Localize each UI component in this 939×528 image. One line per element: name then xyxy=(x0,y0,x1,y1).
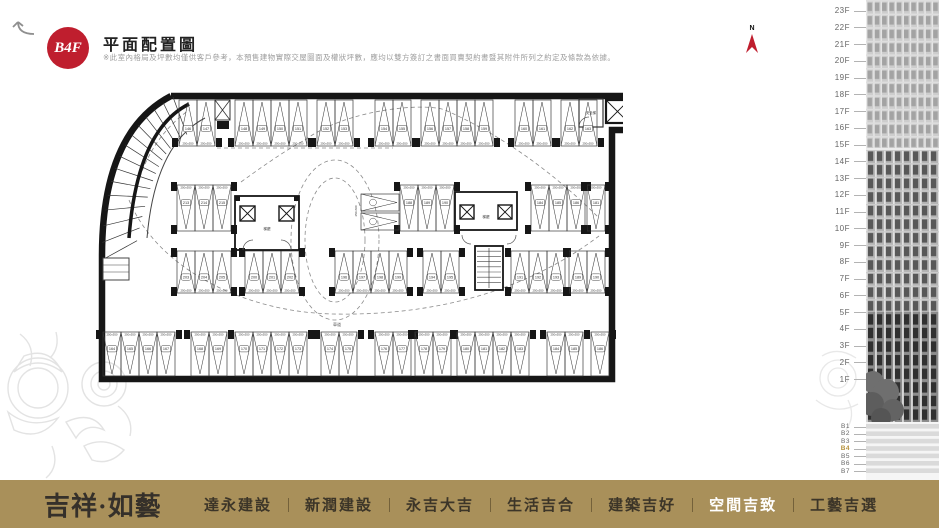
svg-text:250x550: 250x550 xyxy=(496,333,507,337)
floor-badge: B4F xyxy=(47,27,89,69)
svg-text:250x550: 250x550 xyxy=(238,333,249,337)
svg-text:250x550: 250x550 xyxy=(292,141,303,145)
svg-text:250x550: 250x550 xyxy=(200,141,211,145)
svg-text:250x550: 250x550 xyxy=(180,288,191,292)
svg-text:250x600: 250x600 xyxy=(354,205,358,216)
svg-text:250x550: 250x550 xyxy=(378,141,389,145)
nav-item-1[interactable]: 達永建設 xyxy=(188,494,288,515)
main-nav: 達永建設新潤建設永吉大吉生活吉合建築吉好空間吉致工藝吉選 xyxy=(188,494,894,515)
svg-text:安全梯: 安全梯 xyxy=(586,110,597,115)
svg-text:250x550: 250x550 xyxy=(550,288,561,292)
nav-item-6[interactable]: 空間吉致 xyxy=(693,494,793,515)
svg-text:250x550: 250x550 xyxy=(403,186,414,190)
floor-item-18F[interactable]: 18F xyxy=(818,90,868,100)
floor-item-16F[interactable]: 16F xyxy=(818,123,868,133)
svg-text:189: 189 xyxy=(575,275,581,279)
floor-item-11F[interactable]: 11F xyxy=(818,207,868,217)
floor-item-6F[interactable]: 6F xyxy=(818,291,868,301)
svg-text:203: 203 xyxy=(183,275,189,279)
svg-text:250x550: 250x550 xyxy=(460,333,471,337)
svg-text:250x550: 250x550 xyxy=(216,186,227,190)
svg-text:189: 189 xyxy=(424,201,430,205)
svg-text:150: 150 xyxy=(277,127,283,131)
brand-logo[interactable]: 吉祥·如藝 xyxy=(44,486,162,523)
floor-item-15F[interactable]: 15F xyxy=(818,140,868,150)
svg-text:250x550: 250x550 xyxy=(444,288,455,292)
svg-text:213: 213 xyxy=(183,201,189,205)
svg-text:250x550: 250x550 xyxy=(568,333,579,337)
svg-text:174: 174 xyxy=(327,347,333,351)
svg-text:250x550: 250x550 xyxy=(590,288,601,292)
svg-text:車道: 車道 xyxy=(333,321,341,327)
svg-text:250x550: 250x550 xyxy=(256,333,267,337)
svg-text:250x550: 250x550 xyxy=(216,288,227,292)
svg-text:160: 160 xyxy=(521,127,527,131)
svg-text:250x550: 250x550 xyxy=(572,288,583,292)
floor-item-5F[interactable]: 5F xyxy=(818,308,868,318)
svg-text:204: 204 xyxy=(201,275,207,279)
svg-text:250x550: 250x550 xyxy=(534,186,545,190)
floor-item-14F[interactable]: 14F xyxy=(818,157,868,167)
floor-item-19F[interactable]: 19F xyxy=(818,73,868,83)
svg-text:250x550: 250x550 xyxy=(198,288,209,292)
svg-text:156: 156 xyxy=(427,127,433,131)
nav-item-3[interactable]: 永吉大吉 xyxy=(390,494,490,515)
disclaimer-text: ※此室內格局及坪數均僅供客戶參考，本預售建物實際交屋圖面及權狀坪數，應均以雙方簽… xyxy=(103,52,615,63)
floor-item-22F[interactable]: 22F xyxy=(818,23,868,33)
svg-text:190: 190 xyxy=(593,275,599,279)
svg-text:164: 164 xyxy=(109,347,115,351)
floral-watermark-small xyxy=(808,342,868,432)
floor-item-12F[interactable]: 12F xyxy=(818,190,868,200)
svg-text:250x550: 250x550 xyxy=(324,333,335,337)
svg-text:250x550: 250x550 xyxy=(274,333,285,337)
floor-item-4F[interactable]: 4F xyxy=(818,324,868,334)
svg-text:250x550: 250x550 xyxy=(590,186,601,190)
svg-text:192: 192 xyxy=(535,275,541,279)
svg-text:250x550: 250x550 xyxy=(274,141,285,145)
svg-text:190: 190 xyxy=(442,201,448,205)
svg-text:182: 182 xyxy=(499,347,505,351)
svg-text:161: 161 xyxy=(539,127,545,131)
floor-item-7F[interactable]: 7F xyxy=(818,274,868,284)
svg-text:梯廳: 梯廳 xyxy=(263,226,271,231)
compass: N xyxy=(743,25,761,59)
svg-text:172: 172 xyxy=(277,347,283,351)
svg-text:250x550: 250x550 xyxy=(374,288,385,292)
svg-text:250x550: 250x550 xyxy=(238,141,249,145)
svg-text:250x550: 250x550 xyxy=(582,141,593,145)
svg-text:250x550: 250x550 xyxy=(284,288,295,292)
svg-text:250x550: 250x550 xyxy=(182,141,193,145)
svg-text:194: 194 xyxy=(429,275,435,279)
svg-text:250x550: 250x550 xyxy=(532,288,543,292)
svg-text:193: 193 xyxy=(553,275,559,279)
svg-text:250x550: 250x550 xyxy=(550,333,561,337)
svg-text:198: 198 xyxy=(377,275,383,279)
svg-text:250x550: 250x550 xyxy=(106,333,117,337)
svg-text:148: 148 xyxy=(241,127,247,131)
svg-text:250x550: 250x550 xyxy=(142,333,153,337)
svg-text:185: 185 xyxy=(555,201,561,205)
floor-item-2F[interactable]: 2F xyxy=(818,358,868,368)
svg-text:170: 170 xyxy=(241,347,247,351)
floor-item-23F[interactable]: 23F xyxy=(818,6,868,16)
svg-text:250x550: 250x550 xyxy=(194,333,205,337)
svg-text:250x550: 250x550 xyxy=(392,288,403,292)
floor-item-17F[interactable]: 17F xyxy=(818,107,868,117)
svg-text:202: 202 xyxy=(287,275,293,279)
svg-text:186: 186 xyxy=(597,347,603,351)
floor-item-9F[interactable]: 9F xyxy=(818,241,868,251)
svg-text:250x550: 250x550 xyxy=(424,141,435,145)
svg-text:177: 177 xyxy=(399,347,405,351)
floor-item-13F[interactable]: 13F xyxy=(818,174,868,184)
floor-item-B7[interactable]: B7 xyxy=(818,467,868,477)
svg-text:173: 173 xyxy=(295,347,301,351)
svg-text:215: 215 xyxy=(219,201,225,205)
svg-text:250x550: 250x550 xyxy=(518,141,529,145)
svg-text:185: 185 xyxy=(571,347,577,351)
svg-text:146: 146 xyxy=(185,127,191,131)
floor-item-1F[interactable]: 1F xyxy=(818,375,868,385)
svg-text:250x550: 250x550 xyxy=(180,186,191,190)
svg-text:250x550: 250x550 xyxy=(160,333,171,337)
nav-item-5[interactable]: 建築吉好 xyxy=(592,494,692,515)
svg-text:157: 157 xyxy=(445,127,451,131)
svg-text:214: 214 xyxy=(201,201,207,205)
svg-text:176: 176 xyxy=(381,347,387,351)
back-arrow-icon[interactable] xyxy=(10,14,36,38)
svg-text:151: 151 xyxy=(295,127,301,131)
svg-text:184: 184 xyxy=(537,201,543,205)
svg-text:梯廳: 梯廳 xyxy=(482,214,490,219)
svg-text:250x550: 250x550 xyxy=(198,186,209,190)
svg-text:250x550: 250x550 xyxy=(342,333,353,337)
floor-item-8F[interactable]: 8F xyxy=(818,257,868,267)
svg-text:250x550: 250x550 xyxy=(320,141,331,145)
svg-text:250x550: 250x550 xyxy=(124,333,135,337)
svg-text:149: 149 xyxy=(259,127,265,131)
svg-text:250x550: 250x550 xyxy=(212,333,223,337)
svg-text:250x550: 250x550 xyxy=(460,141,471,145)
svg-text:188: 188 xyxy=(406,201,412,205)
svg-text:155: 155 xyxy=(399,127,405,131)
svg-text:183: 183 xyxy=(517,347,523,351)
floor-item-21F[interactable]: 21F xyxy=(818,40,868,50)
svg-text:168: 168 xyxy=(197,347,203,351)
svg-text:250x550: 250x550 xyxy=(514,333,525,337)
svg-text:181: 181 xyxy=(593,201,599,205)
svg-text:250x550: 250x550 xyxy=(564,141,575,145)
svg-text:250x550: 250x550 xyxy=(256,141,267,145)
svg-text:250x550: 250x550 xyxy=(292,333,303,337)
svg-text:250x550: 250x550 xyxy=(439,186,450,190)
svg-text:250x550: 250x550 xyxy=(248,288,259,292)
svg-text:250x550: 250x550 xyxy=(338,141,349,145)
svg-text:250x550: 250x550 xyxy=(356,288,367,292)
svg-text:250x550: 250x550 xyxy=(421,186,432,190)
svg-text:250x550: 250x550 xyxy=(570,186,581,190)
svg-text:152: 152 xyxy=(323,127,329,131)
compass-n-label: N xyxy=(743,25,761,32)
floor-item-20F[interactable]: 20F xyxy=(818,56,868,66)
svg-text:180: 180 xyxy=(463,347,469,351)
svg-text:250x550: 250x550 xyxy=(396,141,407,145)
svg-text:250x550: 250x550 xyxy=(426,288,437,292)
svg-text:166: 166 xyxy=(145,347,151,351)
svg-text:250x550: 250x550 xyxy=(396,333,407,337)
svg-text:250x550: 250x550 xyxy=(338,288,349,292)
svg-text:195: 195 xyxy=(447,275,453,279)
svg-text:162: 162 xyxy=(567,127,573,131)
svg-text:181: 181 xyxy=(481,347,487,351)
svg-text:175: 175 xyxy=(345,347,351,351)
floor-item-3F[interactable]: 3F xyxy=(818,341,868,351)
svg-text:250x550: 250x550 xyxy=(266,288,277,292)
svg-text:153: 153 xyxy=(341,127,347,131)
svg-text:171: 171 xyxy=(259,347,265,351)
svg-text:250x550: 250x550 xyxy=(378,333,389,337)
svg-text:197: 197 xyxy=(359,275,365,279)
nav-item-7[interactable]: 工藝吉選 xyxy=(794,494,894,515)
svg-text:191: 191 xyxy=(517,275,523,279)
svg-text:250x550: 250x550 xyxy=(442,141,453,145)
floor-plan: 安全梯146250x550147250x550148250x550149250x… xyxy=(93,88,623,388)
north-arrow-icon xyxy=(743,32,761,54)
svg-text:167: 167 xyxy=(163,347,169,351)
svg-text:250x550: 250x550 xyxy=(552,186,563,190)
svg-text:169: 169 xyxy=(215,347,221,351)
svg-text:186: 186 xyxy=(573,201,579,205)
svg-text:250x550: 250x550 xyxy=(478,141,489,145)
svg-text:201: 201 xyxy=(269,275,275,279)
svg-text:196: 196 xyxy=(341,275,347,279)
svg-text:250x550: 250x550 xyxy=(514,288,525,292)
svg-text:250x550: 250x550 xyxy=(478,333,489,337)
svg-text:200: 200 xyxy=(251,275,257,279)
nav-item-2[interactable]: 新潤建設 xyxy=(289,494,389,515)
svg-text:250x550: 250x550 xyxy=(418,333,429,337)
svg-text:179: 179 xyxy=(439,347,445,351)
building-photo xyxy=(866,0,939,480)
svg-text:159: 159 xyxy=(481,127,487,131)
svg-text:205: 205 xyxy=(219,275,225,279)
svg-text:165: 165 xyxy=(127,347,133,351)
nav-item-4[interactable]: 生活吉合 xyxy=(491,494,591,515)
svg-text:199: 199 xyxy=(395,275,401,279)
svg-text:163: 163 xyxy=(585,127,591,131)
svg-text:250x550: 250x550 xyxy=(594,333,605,337)
svg-text:158: 158 xyxy=(463,127,469,131)
floor-item-10F[interactable]: 10F xyxy=(818,224,868,234)
svg-text:250x550: 250x550 xyxy=(536,141,547,145)
svg-text:178: 178 xyxy=(421,347,427,351)
svg-text:184: 184 xyxy=(553,347,559,351)
svg-text:154: 154 xyxy=(381,127,387,131)
svg-text:250x550: 250x550 xyxy=(436,333,447,337)
svg-text:147: 147 xyxy=(203,127,209,131)
